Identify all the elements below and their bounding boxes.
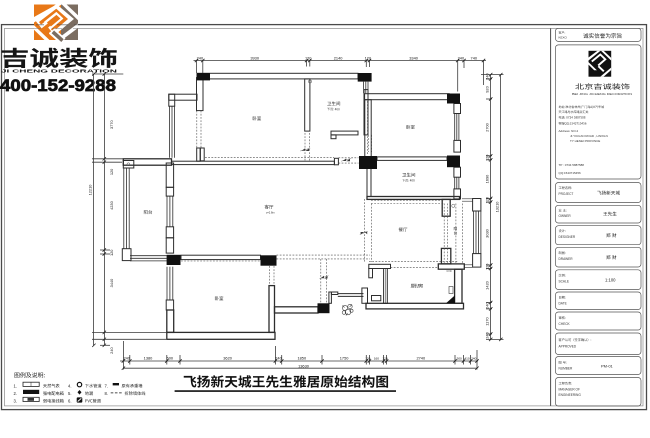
svg-text:JI CHENG DECORATION: JI CHENG DECORATION: [1, 69, 118, 74]
svg-text:13210: 13210: [495, 201, 500, 213]
svg-text:CHECK: CHECK: [559, 322, 571, 326]
svg-text:1690: 1690: [485, 174, 490, 183]
svg-text:JI.YICUAN ROAD , LINXILN: JI.YICUAN ROAD , LINXILN: [570, 134, 608, 138]
svg-text:APPROVED: APPROVED: [559, 345, 577, 349]
svg-text:120: 120: [365, 55, 372, 60]
svg-text:3930: 3930: [250, 55, 259, 60]
svg-text:ENGINEERING: ENGINEERING: [559, 393, 582, 397]
svg-text:410: 410: [464, 357, 469, 361]
svg-text:120: 120: [485, 263, 490, 270]
svg-text:240: 240: [109, 347, 114, 354]
svg-text:240: 240: [275, 356, 282, 361]
svg-text:DESIGNER: DESIGNER: [559, 235, 576, 239]
svg-text:3440: 3440: [109, 278, 114, 287]
svg-text:3620: 3620: [223, 356, 232, 361]
svg-text:120: 120: [382, 357, 387, 361]
svg-text:1380: 1380: [144, 356, 153, 361]
svg-text:740: 740: [471, 55, 478, 60]
svg-text:120: 120: [109, 249, 114, 256]
svg-text:4.: 4.: [68, 383, 72, 388]
svg-text:500: 500: [167, 356, 174, 361]
svg-text:240: 240: [485, 302, 490, 309]
svg-text:BEI JING JICHENG DECORATION: BEI JING JICHENG DECORATION: [572, 92, 632, 96]
svg-text:240: 240: [485, 331, 490, 338]
svg-text:240: 240: [197, 55, 204, 60]
svg-text:Address: NO.2: Address: NO.2: [559, 129, 579, 133]
svg-text:1850: 1850: [297, 356, 306, 361]
svg-text:120: 120: [485, 196, 490, 203]
svg-text:500: 500: [457, 357, 462, 361]
svg-text:120: 120: [305, 55, 312, 60]
svg-text:120: 120: [109, 168, 114, 175]
svg-text:KEXO: KEXO: [559, 36, 568, 40]
svg-text:DATE: DATE: [559, 302, 567, 306]
svg-text:PROJECT: PROJECT: [559, 192, 574, 196]
svg-text:3.: 3.: [14, 398, 18, 403]
svg-text:3030: 3030: [485, 228, 490, 237]
svg-text:8.: 8.: [105, 391, 109, 396]
svg-text:240: 240: [123, 356, 130, 361]
svg-text:1.: 1.: [14, 383, 18, 388]
svg-text:240: 240: [471, 357, 476, 361]
svg-text:PM-01: PM-01: [601, 364, 614, 369]
svg-text:240: 240: [458, 55, 465, 60]
svg-text:120: 120: [485, 154, 490, 161]
svg-text:SCALE: SCALE: [559, 280, 569, 284]
svg-text:CXD: CXD: [447, 270, 452, 273]
svg-text:1:100: 1:100: [605, 278, 616, 283]
svg-text:1170: 1170: [485, 316, 490, 325]
svg-text:240: 240: [485, 73, 490, 80]
svg-text:DRAWER: DRAWER: [559, 257, 574, 261]
svg-text:5.: 5.: [68, 391, 72, 396]
svg-text:c=2.8m: c=2.8m: [266, 211, 275, 215]
svg-text:NUMBER: NUMBER: [559, 367, 574, 371]
svg-text:13630: 13630: [298, 364, 310, 369]
svg-text:TP : 0734 5887588: TP : 0734 5887588: [559, 163, 585, 167]
svg-text:3770: 3770: [109, 120, 114, 129]
svg-text:OWNER: OWNER: [559, 214, 572, 218]
svg-text:1750: 1750: [340, 356, 349, 361]
svg-text:7.: 7.: [105, 383, 109, 388]
svg-text:2140: 2140: [334, 55, 343, 60]
svg-text:6.: 6.: [68, 398, 72, 403]
svg-text:TY HENEI PROVINCE: TY HENEI PROVINCE: [570, 139, 600, 143]
svg-text:12210: 12210: [88, 184, 93, 196]
svg-text:3340: 3340: [409, 55, 418, 60]
svg-text:4230: 4230: [109, 200, 114, 209]
svg-text:MANAGER OF: MANAGER OF: [559, 388, 580, 392]
svg-text:2700: 2700: [485, 122, 490, 131]
svg-text:1420: 1420: [485, 280, 490, 289]
svg-text:160: 160: [374, 357, 379, 361]
svg-text:400-152-9288: 400-152-9288: [0, 77, 116, 95]
svg-text:2.: 2.: [14, 391, 18, 396]
svg-text:920: 920: [485, 85, 490, 92]
svg-text:QQ:1543715456: QQ:1543715456: [559, 171, 582, 175]
svg-text:120: 120: [365, 357, 370, 361]
svg-text:2740: 2740: [416, 356, 425, 361]
